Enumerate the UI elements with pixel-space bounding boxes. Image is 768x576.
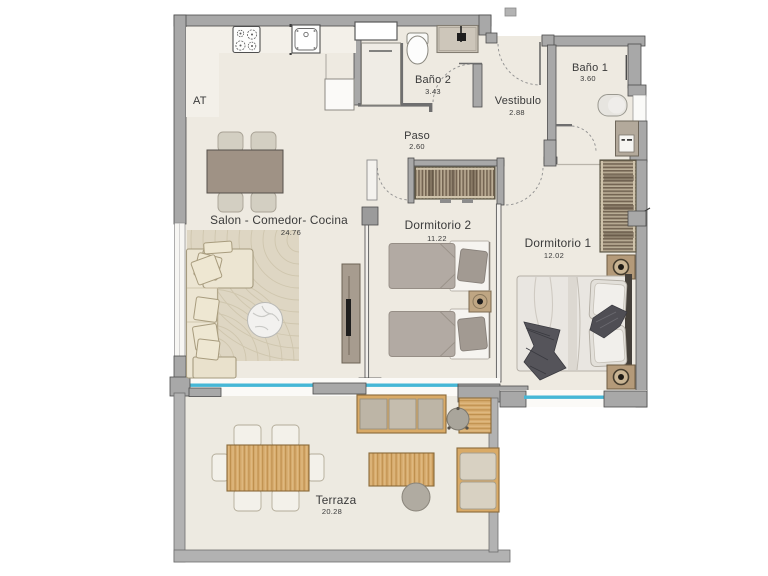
svg-text:24.76: 24.76 <box>281 228 301 237</box>
svg-text:3.43: 3.43 <box>425 87 441 96</box>
svg-text:2.88: 2.88 <box>509 108 525 117</box>
svg-text:Terraza: Terraza <box>316 493 357 507</box>
svg-text:Baño 1: Baño 1 <box>572 62 608 74</box>
svg-text:2.60: 2.60 <box>409 142 425 151</box>
svg-text:AT: AT <box>193 95 207 107</box>
svg-text:Dormitorio 2: Dormitorio 2 <box>405 218 472 232</box>
svg-text:20.28: 20.28 <box>322 507 342 516</box>
svg-text:Paso: Paso <box>404 130 430 142</box>
svg-text:11.22: 11.22 <box>427 234 447 243</box>
svg-text:Dormitorio 1: Dormitorio 1 <box>525 236 592 250</box>
svg-text:12.02: 12.02 <box>544 251 564 260</box>
svg-text:Salon - Comedor- Cocina: Salon - Comedor- Cocina <box>210 213 348 227</box>
svg-text:3.60: 3.60 <box>580 74 596 83</box>
svg-text:Vestibulo: Vestibulo <box>495 95 541 107</box>
svg-text:Baño 2: Baño 2 <box>415 74 451 86</box>
